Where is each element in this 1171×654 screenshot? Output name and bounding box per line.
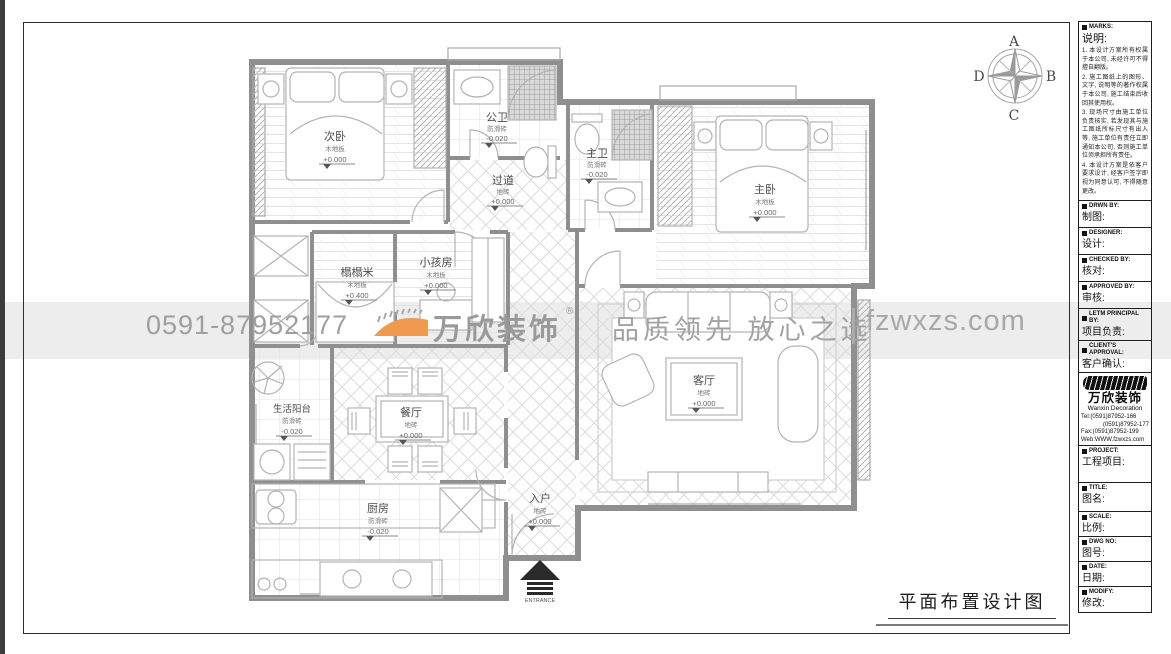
svg-text:+0.000: +0.000 bbox=[692, 399, 715, 408]
title-label-zh: 图名: bbox=[1082, 494, 1148, 506]
marks-note-3: 3. 现场尺寸由施工单位负责核实, 若发现其与施工图纸所标尺寸有出入等, 施工单… bbox=[1082, 109, 1148, 161]
modify-label-zh: 修改: bbox=[1082, 598, 1148, 610]
svg-text:餐厅: 餐厅 bbox=[400, 405, 422, 419]
marks-notes: 1. 本设计方案所有权属于本公司, 未经许可不得擅自翻版。 2. 施工图纸上的图… bbox=[1082, 47, 1148, 196]
drawing-title: 平面布置设计图 bbox=[899, 592, 1046, 613]
drawing-title-block: 平面布置设计图 bbox=[876, 588, 1068, 626]
sidebar-section-title: TITLE: 图名: bbox=[1078, 482, 1152, 512]
company-tel2: (0591)87952-177 bbox=[1081, 422, 1149, 430]
svg-text:木地板: 木地板 bbox=[755, 197, 775, 206]
sidebar-section-date: DATE: 日期: bbox=[1078, 561, 1152, 587]
svg-text:-0.020: -0.020 bbox=[367, 527, 388, 536]
designer-label-zh: 设计: bbox=[1082, 239, 1148, 251]
svg-text:地砖: 地砖 bbox=[405, 420, 419, 429]
sidebar-section-principal: LETM PRINCIPAL BY: 项目负责: bbox=[1078, 308, 1152, 341]
checked-by-label-zh: 核对: bbox=[1082, 266, 1148, 278]
svg-text:主卧: 主卧 bbox=[754, 183, 776, 196]
svg-text:小孩房: 小孩房 bbox=[420, 256, 453, 269]
title-underline-thin bbox=[888, 618, 1056, 619]
scale-label-zh: 比例: bbox=[1082, 523, 1148, 535]
sidebar-section-designer: DESIGNER: 设计: bbox=[1078, 227, 1152, 255]
sidebar-company-box: 万欣装饰 Wanxin Decoration Tel:(0591)87952-1… bbox=[1078, 372, 1152, 446]
drawn-by-label-en: DRWN BY: bbox=[1082, 203, 1148, 210]
sidebar-section-approved-by: APPROVED BY: 审核: bbox=[1078, 281, 1152, 309]
svg-text:主卫: 主卫 bbox=[586, 147, 608, 160]
bed-second bbox=[258, 68, 446, 180]
project-label-en: PROJECT: bbox=[1082, 448, 1148, 455]
svg-text:过道: 过道 bbox=[492, 173, 514, 187]
sidebar-section-marks: MARKS: 说明: 1. 本设计方案所有权属于本公司, 未经许可不得擅自翻版。… bbox=[1078, 21, 1152, 201]
marks-label-zh: 说明: bbox=[1082, 33, 1148, 45]
modify-label-en: MODIFY: bbox=[1082, 589, 1148, 596]
svg-text:地砖: 地砖 bbox=[534, 506, 548, 515]
compass-icon: A B C D bbox=[973, 34, 1056, 124]
svg-text:+0.000: +0.000 bbox=[323, 155, 346, 164]
sidebar-section-dwg-no: DWG NO: 图号: bbox=[1078, 536, 1152, 562]
svg-text:-0.020: -0.020 bbox=[486, 134, 507, 143]
marks-label-en: MARKS: bbox=[1082, 24, 1148, 31]
company-fax: Fax:(0591)87952-199 bbox=[1081, 429, 1149, 437]
compass-west-label: D bbox=[973, 69, 984, 85]
bed-master bbox=[658, 106, 832, 232]
dwg-no-label-en: DWG NO: bbox=[1082, 539, 1148, 546]
sidebar-section-scale: SCALE: 比例: bbox=[1078, 511, 1152, 537]
page-edge-bar bbox=[0, 0, 5, 654]
approved-by-label-en: APPROVED BY: bbox=[1082, 284, 1148, 291]
svg-text:地砖: 地砖 bbox=[698, 388, 712, 397]
svg-text:防滑砖: 防滑砖 bbox=[587, 160, 607, 169]
svg-text:生活阳台: 生活阳台 bbox=[273, 403, 311, 415]
drawn-by-label-zh: 制图: bbox=[1082, 212, 1148, 224]
watermark-tagline: 品质领先 放心之选 bbox=[612, 308, 872, 347]
svg-text:次卧: 次卧 bbox=[324, 129, 346, 143]
marks-note-1: 1. 本设计方案所有权属于本公司, 未经许可不得擅自翻版。 bbox=[1082, 47, 1148, 73]
sidebar-section-modify: MODIFY: 修改: bbox=[1078, 586, 1152, 613]
svg-text:厨房: 厨房 bbox=[367, 502, 389, 515]
svg-text:+0.000: +0.000 bbox=[753, 208, 776, 217]
svg-text:客厅: 客厅 bbox=[693, 373, 715, 387]
client-approval-label-en: CLIENT'S APPROVAL: bbox=[1082, 343, 1148, 357]
svg-text:+0.000: +0.000 bbox=[491, 197, 514, 206]
principal-label-zh: 项目负责: bbox=[1082, 327, 1148, 339]
svg-text:木地板: 木地板 bbox=[426, 270, 446, 279]
svg-text:-0.020: -0.020 bbox=[586, 170, 607, 179]
sidebar-section-checked-by: CHECKED BY: 核对: bbox=[1078, 254, 1152, 282]
date-label-zh: 日期: bbox=[1082, 573, 1148, 585]
title-label-en: TITLE: bbox=[1082, 485, 1148, 492]
svg-text:+0.400: +0.400 bbox=[345, 291, 368, 300]
svg-text:木地板: 木地板 bbox=[325, 144, 345, 153]
compass-north-label: A bbox=[1008, 34, 1020, 50]
client-approval-label-zh: 客户确认: bbox=[1082, 359, 1148, 371]
entrance-label: ENTRANCE bbox=[525, 598, 556, 604]
svg-text:木地板: 木地板 bbox=[347, 280, 367, 289]
company-web: Web:WWW.fzwxzs.com bbox=[1081, 437, 1149, 445]
project-label-zh: 工程项目: bbox=[1082, 457, 1148, 469]
sidebar-section-client-approval: CLIENT'S APPROVAL: 客户确认: bbox=[1078, 340, 1152, 373]
dwg-no-label-zh: 图号: bbox=[1082, 548, 1148, 560]
principal-label-en: LETM PRINCIPAL BY: bbox=[1082, 311, 1148, 325]
company-logo-icon bbox=[1083, 376, 1147, 390]
company-tel1: Tel:(0591)87952-166 bbox=[1081, 414, 1149, 422]
compass-south-label: C bbox=[1009, 108, 1020, 124]
svg-text:防滑砖: 防滑砖 bbox=[368, 516, 388, 525]
sidebar-section-drawn-by: DRWN BY: 制图: bbox=[1078, 200, 1152, 228]
sidebar-section-project: PROJECT: 工程项目: bbox=[1078, 445, 1152, 483]
marks-note-2: 2. 施工图纸上的图形、文字, 说明等的著作权属于本公司, 施工结束后收回其使用… bbox=[1082, 74, 1148, 108]
svg-text:+0.000: +0.000 bbox=[424, 281, 447, 290]
marks-note-4: 4. 本设计方案是依客户要求设计, 经客户签字即视为同意认可, 不得随意更改。 bbox=[1082, 162, 1148, 196]
page: { "page": { "drawing_title": "平面布置设计图", … bbox=[0, 0, 1171, 654]
watermark-website: fzwxzs.com bbox=[866, 305, 1026, 338]
title-underline-thick bbox=[876, 624, 1068, 626]
svg-text:+0.000: +0.000 bbox=[399, 431, 422, 440]
checked-by-label-en: CHECKED BY: bbox=[1082, 257, 1148, 264]
svg-text:榻榻米: 榻榻米 bbox=[341, 265, 374, 279]
registered-mark: ® bbox=[566, 306, 573, 317]
date-label-en: DATE: bbox=[1082, 564, 1148, 571]
title-block-sidebar: MARKS: 说明: 1. 本设计方案所有权属于本公司, 未经许可不得擅自翻版。… bbox=[1078, 22, 1152, 613]
scale-label-en: SCALE: bbox=[1082, 514, 1148, 521]
watermark-separator bbox=[852, 308, 855, 344]
brand-logo-icon bbox=[372, 308, 430, 340]
watermark-brand: 万欣装饰 bbox=[433, 306, 561, 348]
entrance-arrow: ENTRANCE bbox=[520, 560, 560, 604]
svg-text:公卫: 公卫 bbox=[486, 112, 508, 124]
svg-text:地砖: 地砖 bbox=[497, 187, 511, 196]
company-brand-en: Wanxin Decoration bbox=[1081, 405, 1149, 412]
svg-text:防滑砖: 防滑砖 bbox=[487, 124, 507, 133]
svg-text:防滑砖: 防滑砖 bbox=[282, 416, 302, 425]
svg-text:-0.020: -0.020 bbox=[281, 427, 302, 436]
company-brand: 万欣装饰 bbox=[1081, 391, 1149, 405]
approved-by-label-zh: 审核: bbox=[1082, 293, 1148, 305]
svg-text:+0.000: +0.000 bbox=[528, 517, 551, 526]
compass-east-label: B bbox=[1046, 69, 1056, 85]
designer-label-en: DESIGNER: bbox=[1082, 230, 1148, 237]
svg-text:入户: 入户 bbox=[529, 491, 551, 505]
watermark-phone: 0591-87952177 bbox=[146, 310, 348, 341]
